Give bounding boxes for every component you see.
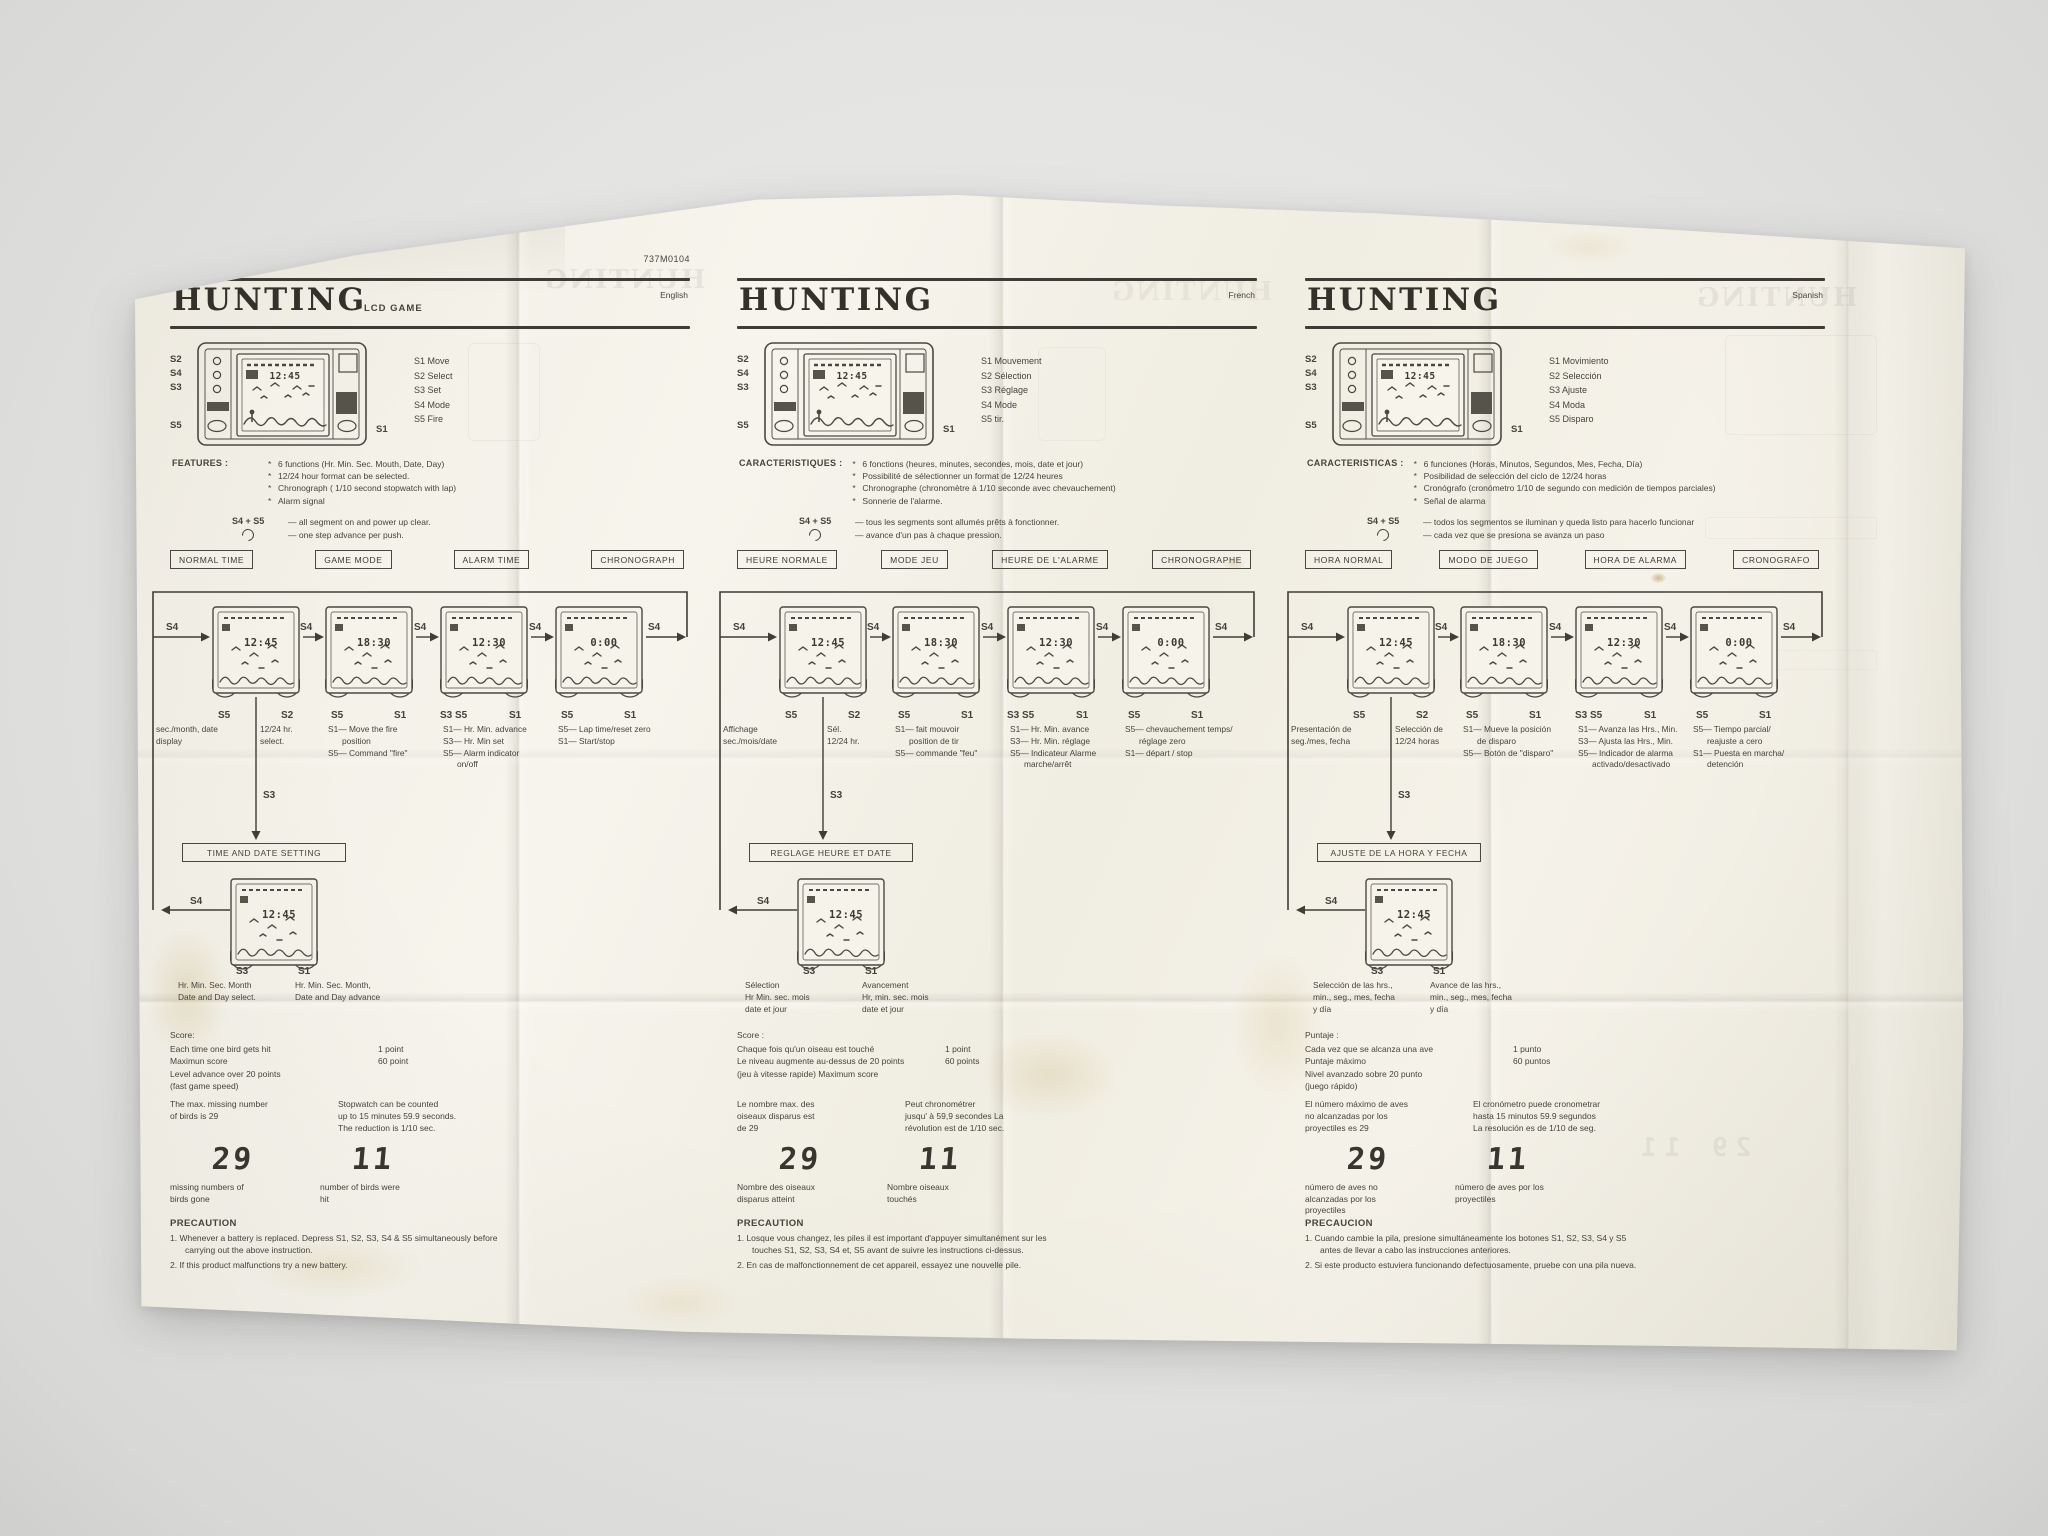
header-rule-top bbox=[737, 278, 1257, 281]
device-s1-label: S1 bbox=[376, 424, 388, 435]
features-section: CARACTERISTIQUES : 6 fonctions (heures, … bbox=[739, 458, 1255, 507]
score-row: Chaque fois qu'un oiseau est touché1 poi… bbox=[737, 1043, 1057, 1055]
instruction-sheet: HUNTING HUNTING HUNTING 29 11 737M0104 H… bbox=[135, 195, 1965, 1355]
setting-select-text: Hr. Min. Sec. Month Date and Day select. bbox=[178, 980, 286, 1004]
s4-s5-label: S4 + S5 bbox=[799, 516, 831, 526]
feature-text: 6 functions (Hr. Min. Sec. Mouth, Date, … bbox=[278, 458, 444, 470]
score-value: 60 puntos bbox=[1513, 1055, 1550, 1067]
feature-item: Cronógrafo (cronómetro 1/10 de segundo c… bbox=[1414, 482, 1823, 494]
lcd-number-missed: 29 bbox=[210, 1142, 255, 1177]
mode-boxes-row: HORA NORMAL MODO DE JUEGO HORA DE ALARMA… bbox=[1305, 550, 1819, 569]
device-s4-label: S4 bbox=[170, 368, 182, 379]
device-illustration-row: S2 S4 S3 S5 S1 S1 MovimientoS2 Selección… bbox=[1305, 342, 1825, 452]
mode-box-alarm-time: ALARM TIME bbox=[454, 550, 530, 569]
push-button-icon bbox=[807, 527, 824, 544]
mode-box-alarm-time: HEURE DE L'ALARME bbox=[992, 550, 1108, 569]
setting-select-text: Sélection Hr Min. sec. mois date et jour bbox=[745, 980, 853, 1015]
feature-item: Señal de alarma bbox=[1414, 495, 1823, 507]
device-s4-label: S4 bbox=[737, 368, 749, 379]
power-up-line1: — tous les segments sont allumés prêts à… bbox=[855, 516, 1215, 528]
flow-desc-alarm: S1— Hr. Min. avance S3— Hr. Min. réglage… bbox=[1010, 724, 1122, 771]
features-heading: CARACTERISTICAS : bbox=[1307, 458, 1414, 507]
precaution-heading: PRECAUTION bbox=[170, 1218, 505, 1229]
feature-text: 12/24 hour format can be selected. bbox=[278, 470, 409, 482]
precaution-heading: PRECAUTION bbox=[737, 1218, 1072, 1229]
stopwatch-text: Peut chronométrer jusqu' à 59,9 secondes… bbox=[905, 1098, 1100, 1134]
power-up-line1: — todos los segmentos se iluminan y qued… bbox=[1423, 516, 1783, 528]
time-date-setting-box: AJUSTE DE LA HORA Y FECHA bbox=[1317, 843, 1481, 862]
feature-text: Possibilité de sélectionner un format de… bbox=[862, 470, 1062, 482]
score-value: 1 point bbox=[945, 1043, 971, 1055]
device-s5-label: S5 bbox=[170, 420, 182, 431]
score-section: Score: Each time one bird gets hit1 poin… bbox=[170, 1030, 490, 1092]
score-label: Level advance over 20 points bbox=[170, 1068, 370, 1080]
mode-flow-diagram: Presentación de seg./mes, fecha Selecció… bbox=[1275, 586, 1835, 1020]
flow-desc-game: S1— fait mouvoir position de tir S5— com… bbox=[895, 724, 1007, 759]
column-french: HUNTING French S2 S4 S3 S5 S1 S1 Mouveme… bbox=[737, 230, 1259, 1340]
button-function: S5 Disparo bbox=[1549, 412, 1609, 427]
max-birds-text: The max. missing number of birds is 29 bbox=[170, 1098, 320, 1134]
score-row: Level advance over 20 points bbox=[170, 1068, 490, 1080]
score-label: Cada vez que se alcanza una ave bbox=[1305, 1043, 1505, 1055]
features-section: CARACTERISTICAS : 6 funciones (Horas, Mi… bbox=[1307, 458, 1823, 507]
button-function: S2 Selección bbox=[1549, 369, 1609, 384]
button-function-list: S1 MouvementS2 SélectionS3 RéglageS4 Mod… bbox=[981, 354, 1042, 427]
device-s3-label: S3 bbox=[1305, 382, 1317, 393]
feature-text: Posibilidad de selección del ciclo de 12… bbox=[1424, 470, 1607, 482]
power-up-line1: — all segment on and power up clear. bbox=[288, 516, 648, 528]
score-label: (jeu à vitesse rapide) Maximum score bbox=[737, 1068, 937, 1080]
device-s1-label: S1 bbox=[943, 424, 955, 435]
header-rule-bottom bbox=[737, 326, 1257, 329]
score-value: 60 point bbox=[378, 1055, 408, 1067]
instruction-sheet-wrap: HUNTING HUNTING HUNTING 29 11 737M0104 H… bbox=[135, 195, 1965, 1355]
feature-text: Sonnerie de l'alarme. bbox=[862, 495, 942, 507]
feature-item: 6 functions (Hr. Min. Sec. Mouth, Date, … bbox=[268, 458, 688, 470]
button-function: S1 Movimiento bbox=[1549, 354, 1609, 369]
feature-text: Señal de alarma bbox=[1424, 495, 1486, 507]
missed-caption: Nombre des oiseaux disparus atteint bbox=[737, 1182, 882, 1205]
precaution-item: 1. Losque vous changez, les piles il est… bbox=[737, 1232, 1072, 1256]
feature-text: 6 funciones (Horas, Minutos, Segundos, M… bbox=[1424, 458, 1643, 470]
folded-edge-strip bbox=[1847, 195, 1965, 1355]
lcd-number-hit: 11 bbox=[350, 1142, 395, 1177]
device-s2-label: S2 bbox=[737, 354, 749, 365]
page-title: HUNTING bbox=[172, 282, 367, 318]
features-list: 6 functions (Hr. Min. Sec. Mouth, Date, … bbox=[268, 458, 688, 507]
features-section: FEATURES : 6 functions (Hr. Min. Sec. Mo… bbox=[172, 458, 688, 507]
max-birds-text: Le nombre max. des oiseaux disparus est … bbox=[737, 1098, 887, 1134]
score-row: (fast game speed) bbox=[170, 1080, 490, 1092]
handheld-device-illustration bbox=[196, 342, 368, 446]
button-function: S2 Select bbox=[414, 369, 453, 384]
page-title: HUNTING bbox=[1307, 282, 1502, 318]
s4-s5-label: S4 + S5 bbox=[1367, 516, 1399, 526]
device-illustration-row: S2 S4 S3 S5 S1 S1 MoveS2 SelectS3 SetS4 … bbox=[170, 342, 690, 452]
score-label: Each time one bird gets hit bbox=[170, 1043, 370, 1055]
precaution-item: 2. En cas de malfonctionnement de cet ap… bbox=[737, 1259, 1072, 1271]
flow-desc-chrono: S5— Tiempo parcial/ reajuste a cero S1— … bbox=[1693, 724, 1831, 771]
mode-flow-diagram: Affichage sec./mois/date Sél. 12/24 hr. … bbox=[707, 586, 1267, 1020]
feature-item: Chronographe (chronomètre à 1/10 seconde… bbox=[852, 482, 1255, 494]
button-function: S4 Moda bbox=[1549, 398, 1609, 413]
flow-desc-display: sec./month, date display bbox=[156, 724, 248, 748]
precaution-section: PRECAUTION 1. Whenever a battery is repl… bbox=[170, 1218, 505, 1271]
feature-text: 6 fonctions (heures, minutes, secondes, … bbox=[862, 458, 1083, 470]
score-label: Maximun score bbox=[170, 1055, 370, 1067]
mode-box-normal-time: NORMAL TIME bbox=[170, 550, 253, 569]
lcd-number-missed: 29 bbox=[777, 1142, 822, 1177]
score-value: 1 punto bbox=[1513, 1043, 1541, 1055]
lcd-number-hit: 11 bbox=[917, 1142, 962, 1177]
features-list: 6 funciones (Horas, Minutos, Segundos, M… bbox=[1414, 458, 1823, 507]
time-date-setting-box: TIME AND DATE SETTING bbox=[182, 843, 346, 862]
score-row: Le niveau augmente au-dessus de 20 point… bbox=[737, 1055, 1057, 1067]
score-row: (juego rápido) bbox=[1305, 1080, 1625, 1092]
power-up-line2: — one step advance per push. bbox=[288, 529, 648, 541]
score-label: Puntaje máximo bbox=[1305, 1055, 1505, 1067]
max-birds-text: El número máximo de aves no alcanzadas p… bbox=[1305, 1098, 1455, 1134]
precaution-item: 2. Si este producto estuviera funcionand… bbox=[1305, 1259, 1640, 1271]
vertical-crease bbox=[1834, 195, 1860, 1355]
button-function: S3 Set bbox=[414, 383, 453, 398]
score-row: Cada vez que se alcanza una ave1 punto bbox=[1305, 1043, 1625, 1055]
precaution-item: 1. Whenever a battery is replaced. Depre… bbox=[170, 1232, 505, 1256]
column-english: 737M0104 HUNTING LCD GAME English S2 S4 … bbox=[170, 230, 692, 1340]
feature-text: Cronógrafo (cronómetro 1/10 de segundo c… bbox=[1424, 482, 1716, 494]
part-number: 737M0104 bbox=[643, 254, 690, 264]
precaution-item: 1. Cuando cambie la pila, presione simul… bbox=[1305, 1232, 1640, 1256]
features-heading: FEATURES : bbox=[172, 458, 268, 507]
time-date-setting-box: REGLAGE HEURE ET DATE bbox=[749, 843, 913, 862]
push-button-icon bbox=[1375, 527, 1392, 544]
header-rule-bottom bbox=[1305, 326, 1825, 329]
device-s5-label: S5 bbox=[1305, 420, 1317, 431]
flow-desc-1224: 12/24 hr. select. bbox=[260, 724, 322, 748]
button-function: S4 Mode bbox=[414, 398, 453, 413]
page-title: HUNTING bbox=[739, 282, 934, 318]
limits-row: The max. missing number of birds is 29 S… bbox=[170, 1098, 640, 1134]
score-heading: Score: bbox=[170, 1030, 490, 1040]
score-section: Puntaje : Cada vez que se alcanza una av… bbox=[1305, 1030, 1625, 1092]
score-label: Chaque fois qu'un oiseau est touché bbox=[737, 1043, 937, 1055]
mode-box-game-mode: GAME MODE bbox=[315, 550, 391, 569]
precaution-section: PRECAUCION 1. Cuando cambie la pila, pre… bbox=[1305, 1218, 1640, 1271]
flow-desc-1224: Selección de 12/24 horas bbox=[1395, 724, 1457, 748]
flow-desc-1224: Sél. 12/24 hr. bbox=[827, 724, 889, 748]
title-subtitle: LCD GAME bbox=[364, 303, 423, 314]
power-up-note: S4 + S5 — tous les segments sont allumés… bbox=[737, 516, 1257, 550]
power-up-line2: — cada vez que se presiona se avanza un … bbox=[1423, 529, 1783, 541]
score-row: Puntaje máximo60 puntos bbox=[1305, 1055, 1625, 1067]
mode-box-normal-time: HORA NORMAL bbox=[1305, 550, 1392, 569]
language-label: English bbox=[660, 290, 688, 300]
button-function: S4 Mode bbox=[981, 398, 1042, 413]
power-up-note: S4 + S5 — all segment on and power up cl… bbox=[170, 516, 690, 550]
lcd-number-hit: 11 bbox=[1485, 1142, 1530, 1177]
button-function: S3 Ajuste bbox=[1549, 383, 1609, 398]
feature-item: 12/24 hour format can be selected. bbox=[268, 470, 688, 482]
score-label: Le niveau augmente au-dessus de 20 point… bbox=[737, 1055, 937, 1067]
language-label: French bbox=[1229, 290, 1255, 300]
mode-box-chronograph: CRONOGRAFO bbox=[1733, 550, 1819, 569]
device-s1-label: S1 bbox=[1511, 424, 1523, 435]
feature-item: Possibilité de sélectionner un format de… bbox=[852, 470, 1255, 482]
features-heading: CARACTERISTIQUES : bbox=[739, 458, 852, 507]
button-function: S5 tir. bbox=[981, 412, 1042, 427]
features-list: 6 fonctions (heures, minutes, secondes, … bbox=[852, 458, 1255, 507]
feature-item: Posibilidad de selección del ciclo de 12… bbox=[1414, 470, 1823, 482]
score-label: (fast game speed) bbox=[170, 1080, 370, 1092]
feature-item: Sonnerie de l'alarme. bbox=[852, 495, 1255, 507]
flow-diagram-art bbox=[140, 586, 700, 978]
flow-desc-alarm: S1— Avanza las Hrs., Min. S3— Ajusta las… bbox=[1578, 724, 1690, 771]
header-rule-bottom bbox=[170, 326, 690, 329]
feature-item: 6 fonctions (heures, minutes, secondes, … bbox=[852, 458, 1255, 470]
flow-desc-game: S1— Move the fire position S5— Command "… bbox=[328, 724, 440, 759]
feature-text: Chronograph ( 1/10 second stopwatch with… bbox=[278, 482, 456, 494]
feature-item: Chronograph ( 1/10 second stopwatch with… bbox=[268, 482, 688, 494]
score-row: Maximun score60 point bbox=[170, 1055, 490, 1067]
feature-item: 6 funciones (Horas, Minutos, Segundos, M… bbox=[1414, 458, 1823, 470]
hit-caption: number of birds were hit bbox=[320, 1182, 465, 1205]
mode-box-game-mode: MODE JEU bbox=[881, 550, 948, 569]
mode-box-chronograph: CHRONOGRAPH bbox=[591, 550, 684, 569]
score-value: 1 point bbox=[378, 1043, 404, 1055]
hit-caption: Nombre oiseaux touchés bbox=[887, 1182, 1032, 1205]
horizontal-crease bbox=[135, 1362, 1965, 1382]
device-illustration-row: S2 S4 S3 S5 S1 S1 MouvementS2 SélectionS… bbox=[737, 342, 1257, 452]
mode-boxes-row: HEURE NORMALE MODE JEU HEURE DE L'ALARME… bbox=[737, 550, 1251, 569]
score-section: Score : Chaque fois qu'un oiseau est tou… bbox=[737, 1030, 1057, 1080]
button-function: S5 Fire bbox=[414, 412, 453, 427]
handheld-device-illustration bbox=[763, 342, 935, 446]
flow-desc-display: Presentación de seg./mes, fecha bbox=[1291, 724, 1383, 748]
hit-caption: número de aves por los proyectiles bbox=[1455, 1182, 1600, 1205]
flow-diagram-art bbox=[1275, 586, 1835, 978]
flow-desc-chrono: S5— chevauchement temps/ réglage zero S1… bbox=[1125, 724, 1263, 759]
device-s2-label: S2 bbox=[170, 354, 182, 365]
button-function: S3 Réglage bbox=[981, 383, 1042, 398]
device-s4-label: S4 bbox=[1305, 368, 1317, 379]
setting-select-text: Selección de las hrs., min., seg., mes, … bbox=[1313, 980, 1421, 1015]
flow-desc-chrono: S5— Lap time/reset zero S1— Start/stop bbox=[558, 724, 696, 748]
mode-flow-diagram: sec./month, date display 12/24 hr. selec… bbox=[140, 586, 700, 1020]
score-row: Each time one bird gets hit1 point bbox=[170, 1043, 490, 1055]
handheld-device-illustration bbox=[1331, 342, 1503, 446]
score-label: (juego rápido) bbox=[1305, 1080, 1505, 1092]
flow-desc-display: Affichage sec./mois/date bbox=[723, 724, 815, 748]
missed-caption: número de aves no alcanzadas por los pro… bbox=[1305, 1182, 1450, 1217]
button-function: S1 Mouvement bbox=[981, 354, 1042, 369]
score-value: 60 points bbox=[945, 1055, 980, 1067]
flow-desc-game: S1— Mueve la posición de disparo S5— Bot… bbox=[1463, 724, 1575, 759]
feature-text: Alarm signal bbox=[278, 495, 325, 507]
score-heading: Score : bbox=[737, 1030, 1057, 1040]
mode-box-normal-time: HEURE NORMALE bbox=[737, 550, 837, 569]
score-row: (jeu à vitesse rapide) Maximum score bbox=[737, 1068, 1057, 1080]
push-button-icon bbox=[240, 527, 257, 544]
limits-row: Le nombre max. des oiseaux disparus est … bbox=[737, 1098, 1207, 1134]
button-function-list: S1 MoveS2 SelectS3 SetS4 ModeS5 Fire bbox=[414, 354, 453, 427]
flow-diagram-art bbox=[707, 586, 1267, 978]
column-spanish: HUNTING Spanish S2 S4 S3 S5 S1 S1 Movimi… bbox=[1305, 230, 1827, 1340]
precaution-item: 2. If this product malfunctions try a ne… bbox=[170, 1259, 505, 1271]
s4-s5-label: S4 + S5 bbox=[232, 516, 264, 526]
power-up-note: S4 + S5 — todos los segmentos se ilumina… bbox=[1305, 516, 1825, 550]
feature-item: Alarm signal bbox=[268, 495, 688, 507]
missed-caption: missing numbers of birds gone bbox=[170, 1182, 315, 1205]
precaution-section: PRECAUTION 1. Losque vous changez, les p… bbox=[737, 1218, 1072, 1271]
mode-box-alarm-time: HORA DE ALARMA bbox=[1585, 550, 1687, 569]
mode-box-chronograph: CHRONOGRAPHE bbox=[1152, 550, 1251, 569]
setting-advance-text: Avance de las hrs., min., seg., mes, fec… bbox=[1430, 980, 1538, 1015]
device-s2-label: S2 bbox=[1305, 354, 1317, 365]
button-function: S2 Sélection bbox=[981, 369, 1042, 384]
mode-boxes-row: NORMAL TIME GAME MODE ALARM TIME CHRONOG… bbox=[170, 550, 684, 569]
precaution-heading: PRECAUCION bbox=[1305, 1218, 1640, 1229]
limits-row: El número máximo de aves no alcanzadas p… bbox=[1305, 1098, 1775, 1134]
device-s3-label: S3 bbox=[170, 382, 182, 393]
mode-box-game-mode: MODO DE JUEGO bbox=[1439, 550, 1537, 569]
button-function: S1 Move bbox=[414, 354, 453, 369]
button-function-list: S1 MovimientoS2 SelecciónS3 AjusteS4 Mod… bbox=[1549, 354, 1609, 427]
setting-advance-text: Avancement Hr, min. sec. mois date et jo… bbox=[862, 980, 970, 1015]
score-label: Nivel avanzado sobre 20 punto bbox=[1305, 1068, 1505, 1080]
device-s3-label: S3 bbox=[737, 382, 749, 393]
stopwatch-text: El cronómetro puede cronometrar hasta 15… bbox=[1473, 1098, 1668, 1134]
header-rule-top bbox=[170, 278, 690, 281]
setting-advance-text: Hr. Min. Sec. Month, Date and Day advanc… bbox=[295, 980, 403, 1004]
lcd-number-missed: 29 bbox=[1345, 1142, 1390, 1177]
power-up-line2: — avance d'un pas à chaque pression. bbox=[855, 529, 1215, 541]
flow-desc-alarm: S1— Hr. Min. advance S3— Hr. Min set S5—… bbox=[443, 724, 555, 771]
device-s5-label: S5 bbox=[737, 420, 749, 431]
feature-text: Chronographe (chronomètre à 1/10 seconde… bbox=[862, 482, 1115, 494]
score-heading: Puntaje : bbox=[1305, 1030, 1625, 1040]
score-row: Nivel avanzado sobre 20 punto bbox=[1305, 1068, 1625, 1080]
header-rule-top bbox=[1305, 278, 1825, 281]
stopwatch-text: Stopwatch can be counted up to 15 minute… bbox=[338, 1098, 533, 1134]
language-label: Spanish bbox=[1792, 290, 1823, 300]
